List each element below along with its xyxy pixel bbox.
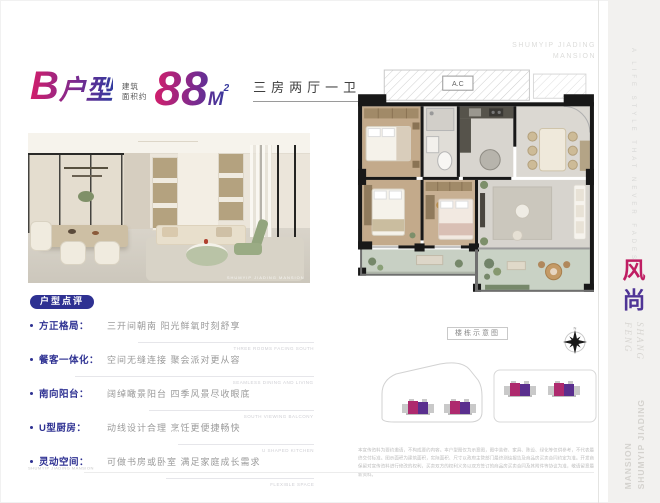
unit-review: 户型点评 方正格局： 三开间朝南 阳光鲜氧时刻舒享 THREE ROOMS FA… xyxy=(30,291,314,479)
unit-title-rest: 户型 xyxy=(59,75,113,105)
footer-rule xyxy=(84,472,594,473)
svg-text:N: N xyxy=(574,326,577,331)
rule-line: U SHAPED KITCHEN xyxy=(178,438,314,445)
review-item: U型厨房： 动线设计合理 烹饪更便捷畅快 U SHAPED KITCHEN xyxy=(30,420,314,445)
cushion xyxy=(162,227,178,237)
bullet-dot xyxy=(30,392,33,395)
bedroom-3 xyxy=(424,180,475,246)
wall-niche-left xyxy=(152,157,178,231)
lounge-chair-seat xyxy=(234,243,262,255)
feng-shang-en: FENG SHANG xyxy=(608,322,660,361)
unit-header: B户型 建筑 面积约 88M2 三房两厅一卫 xyxy=(30,64,361,109)
feng-shang-title: 风 尚 xyxy=(608,256,660,316)
bullet-dot xyxy=(30,460,33,463)
review-item: 餐客一体化： 空间无缝连接 聚会派对更从容 SEAMLESS DINING AN… xyxy=(30,352,314,377)
kitchen xyxy=(460,106,513,177)
dining-chair xyxy=(30,221,52,251)
ceiling-groove xyxy=(138,141,198,142)
compass-icon: N xyxy=(559,325,591,357)
review-item: 方正格局： 三开间朝南 阳光鲜氧时刻舒享 THREE ROOMS FACING … xyxy=(30,318,314,343)
table-decor xyxy=(92,231,99,235)
rule-line: SOUTH VIEWING BALCONY xyxy=(149,404,314,411)
side-strip: A LIFE STYLE THAT NEVER FADES 风 尚 FENG S… xyxy=(608,0,660,503)
cushion xyxy=(216,227,232,237)
rule-line: FLEXIBLE SPACE xyxy=(166,472,314,479)
area-unit: M2 xyxy=(208,89,229,110)
plant xyxy=(78,191,94,202)
review-item: 南向阳台： 阔绰瞰景阳台 四季风景尽收眼底 SOUTH VIEWING BALC… xyxy=(30,386,314,411)
floor-plan: A.C xyxy=(356,64,596,316)
rule-line: THREE ROOMS FACING SOUTH xyxy=(138,336,314,343)
master-bedroom xyxy=(362,106,420,177)
hallway xyxy=(124,153,150,229)
interior-rendering: SHUMYIP JIADING MANSION xyxy=(28,133,310,283)
site-plan xyxy=(366,356,606,436)
brochure-page: B户型 建筑 面积约 88M2 三房两厅一卫 xyxy=(0,0,660,503)
dining-foyer xyxy=(516,106,590,177)
hero-watermark: SHUMYIP JIADING MANSION xyxy=(227,276,305,281)
living-room xyxy=(478,180,590,250)
site-diagram-label: 楼栋示意图 xyxy=(447,327,508,340)
bullet-dot xyxy=(30,324,33,327)
dining-chair xyxy=(60,241,86,265)
balcony-living xyxy=(478,249,590,291)
vase xyxy=(204,239,208,244)
ac-platform: A.C xyxy=(384,70,586,100)
footer-mark: SHUMYIP JIADING MANSION xyxy=(28,466,94,471)
strip-tagline: A LIFE STYLE THAT NEVER FADES xyxy=(630,48,636,263)
layout-tag: 三房两厅一卫 xyxy=(253,77,361,102)
review-badge: 户型点评 xyxy=(30,295,94,310)
unit-letter: B xyxy=(30,64,59,108)
bullet-dot xyxy=(30,358,33,361)
strip-brand-vertical: MANSION SHUMYIP JIADING xyxy=(608,399,660,489)
svg-text:A.C: A.C xyxy=(452,81,464,88)
area-value: 88M2 xyxy=(154,71,229,109)
bedroom-2 xyxy=(362,180,420,246)
strip-divider xyxy=(598,0,599,503)
bathroom xyxy=(424,106,457,177)
unit-title: B户型 xyxy=(30,64,113,109)
balcony-left xyxy=(362,249,477,275)
disclaimer-text: 本宣传资料为要约邀请，不构成要约内容。本户型图仅为示意图，图中装修、家具、陈设、… xyxy=(358,446,594,478)
rule-line: SEAMLESS DINING AND LIVING xyxy=(75,370,314,377)
wall-niche-right xyxy=(218,153,244,221)
floor-plan-svg: A.C xyxy=(356,64,596,316)
area-label: 建筑 面积约 xyxy=(122,82,148,102)
bullet-dot xyxy=(30,426,33,429)
pendant-lamp-lower xyxy=(72,175,102,177)
dining-chair xyxy=(94,241,120,265)
coffee-table xyxy=(186,243,228,266)
brand-watermark: SHUMYIP JIADING MANSION xyxy=(460,40,596,62)
table-decor xyxy=(68,229,76,234)
pendant-lamp xyxy=(64,167,108,169)
center-wall xyxy=(178,153,218,231)
